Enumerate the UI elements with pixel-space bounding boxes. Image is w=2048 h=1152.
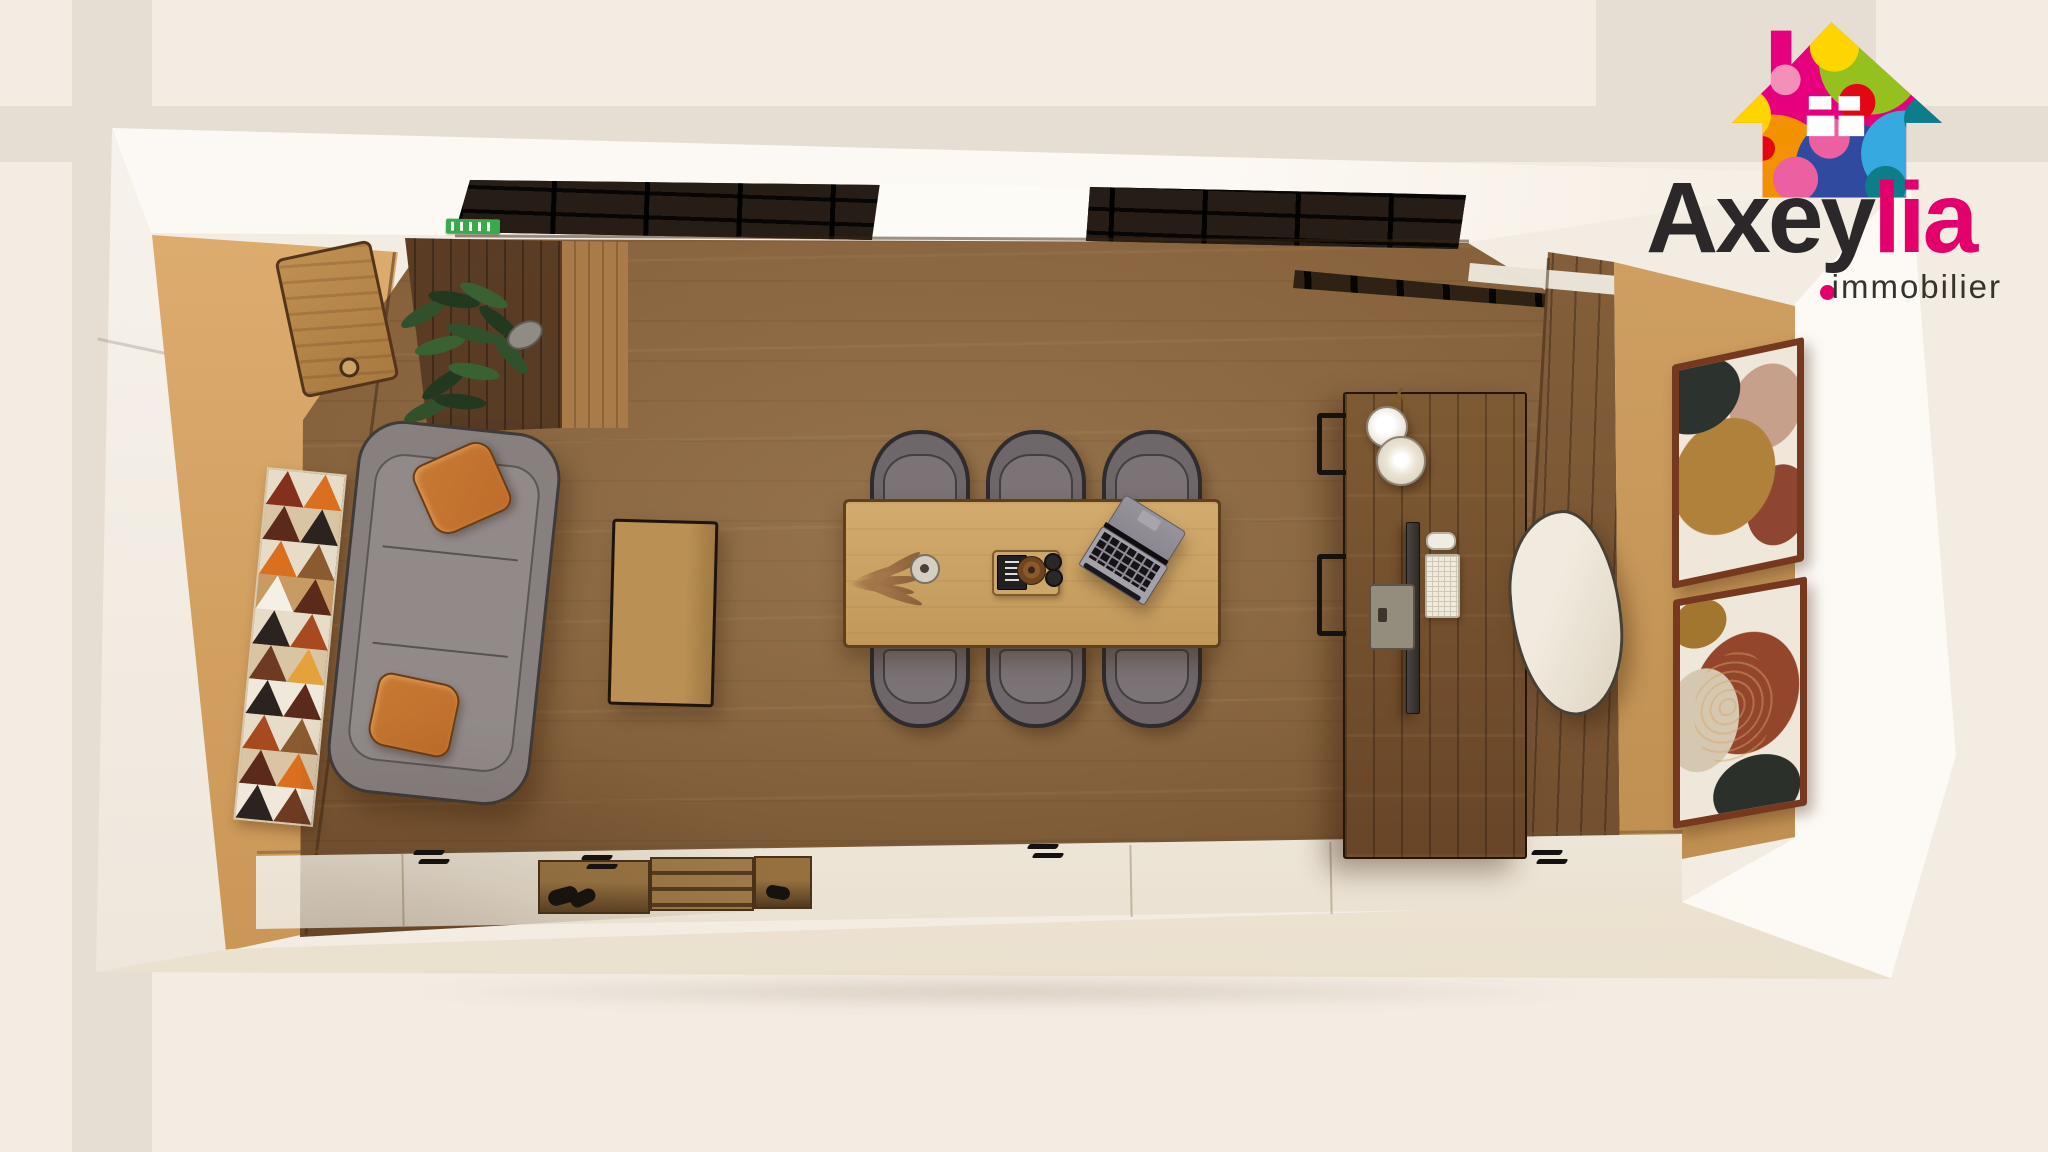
house-window [1839,116,1865,136]
art-ring-texture [1694,645,1773,771]
brand-name-primary: Axey [1646,162,1873,274]
exit-sign [446,219,500,235]
house-window [1839,96,1861,110]
render-canvas: Axeylia immobilier [0,0,2048,1152]
brand-name-accent: lia [1873,162,1975,274]
house-window [1809,96,1832,109]
framed-abstract-art-top [1672,337,1804,589]
framed-abstract-art-bottom [1673,576,1807,829]
house-window [1807,116,1835,136]
ground-shadow [140,978,1860,1024]
brand-wordmark: Axeylia [1646,168,1975,268]
brand-tagline: immobilier [1646,268,2002,306]
